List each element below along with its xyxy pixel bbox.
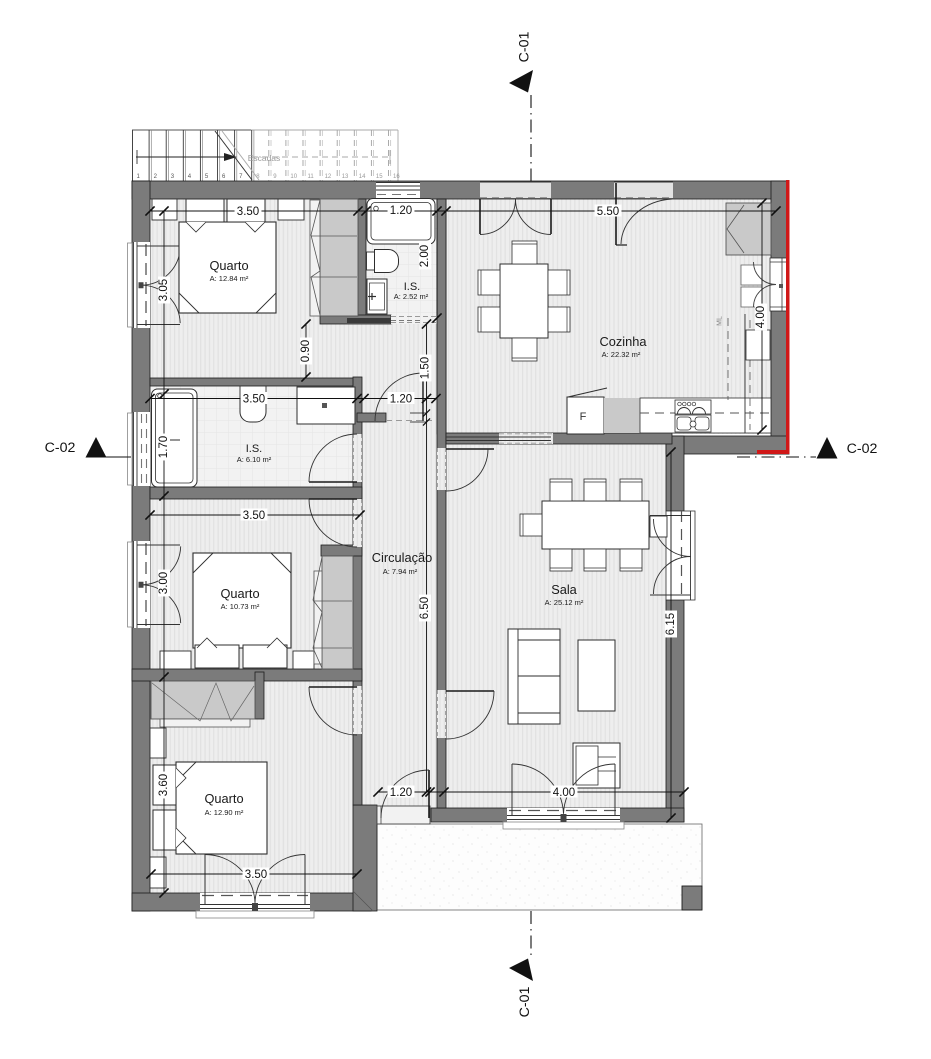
svg-text:2.00: 2.00 xyxy=(419,245,431,267)
svg-text:A: 6.10 m²: A: 6.10 m² xyxy=(237,455,272,464)
svg-text:1.20: 1.20 xyxy=(390,394,412,406)
svg-text:1.20: 1.20 xyxy=(390,205,412,217)
svg-text:3.00: 3.00 xyxy=(158,572,170,594)
svg-text:Cozinha: Cozinha xyxy=(600,334,648,349)
svg-text:Quarto: Quarto xyxy=(204,791,243,806)
svg-text:3.50: 3.50 xyxy=(245,869,267,881)
svg-text:16: 16 xyxy=(393,174,400,180)
svg-text:ML: ML xyxy=(717,316,724,326)
svg-text:4.00: 4.00 xyxy=(553,787,575,799)
svg-text:F: F xyxy=(580,411,587,423)
svg-text:3.50: 3.50 xyxy=(237,206,259,218)
svg-text:6.15: 6.15 xyxy=(665,613,677,635)
svg-text:Quarto: Quarto xyxy=(209,258,248,273)
svg-text:12: 12 xyxy=(325,174,332,180)
svg-text:Escadas: Escadas xyxy=(248,153,281,163)
svg-text:10: 10 xyxy=(290,174,297,180)
svg-text:3.60: 3.60 xyxy=(158,774,170,796)
svg-text:Quarto: Quarto xyxy=(220,586,259,601)
svg-text:3.50: 3.50 xyxy=(243,510,265,522)
svg-text:1.20: 1.20 xyxy=(390,787,412,799)
svg-text:0.90: 0.90 xyxy=(300,340,312,362)
svg-text:15: 15 xyxy=(376,174,383,180)
svg-text:4.00: 4.00 xyxy=(755,306,767,328)
svg-text:A: 25.12 m²: A: 25.12 m² xyxy=(545,598,584,607)
svg-text:A: 12.90 m²: A: 12.90 m² xyxy=(205,808,244,817)
svg-text:1.70: 1.70 xyxy=(158,436,170,458)
svg-text:I.S.: I.S. xyxy=(246,443,263,455)
svg-text:Circulação: Circulação xyxy=(372,550,432,565)
svg-text:6.50: 6.50 xyxy=(419,597,431,619)
svg-text:C-01: C-01 xyxy=(517,987,533,1018)
svg-text:14: 14 xyxy=(359,174,366,180)
svg-text:C-02: C-02 xyxy=(45,440,76,456)
svg-text:A: 2.52 m²: A: 2.52 m² xyxy=(394,292,429,301)
svg-text:3.50: 3.50 xyxy=(243,394,265,406)
svg-text:3.05: 3.05 xyxy=(158,279,170,301)
svg-text:C-02: C-02 xyxy=(847,441,878,457)
svg-text:A: 7.94 m²: A: 7.94 m² xyxy=(383,567,418,576)
svg-text:A: 10.73 m²: A: 10.73 m² xyxy=(221,602,260,611)
svg-text:Sala: Sala xyxy=(551,582,577,597)
svg-text:C-01: C-01 xyxy=(517,32,533,63)
svg-text:A: 12.84 m²: A: 12.84 m² xyxy=(210,274,249,283)
svg-text:A: 22.32 m²: A: 22.32 m² xyxy=(602,350,641,359)
svg-text:1.50: 1.50 xyxy=(420,357,432,379)
svg-text:11: 11 xyxy=(308,174,315,180)
svg-text:13: 13 xyxy=(342,174,349,180)
svg-text:5.50: 5.50 xyxy=(597,206,619,218)
